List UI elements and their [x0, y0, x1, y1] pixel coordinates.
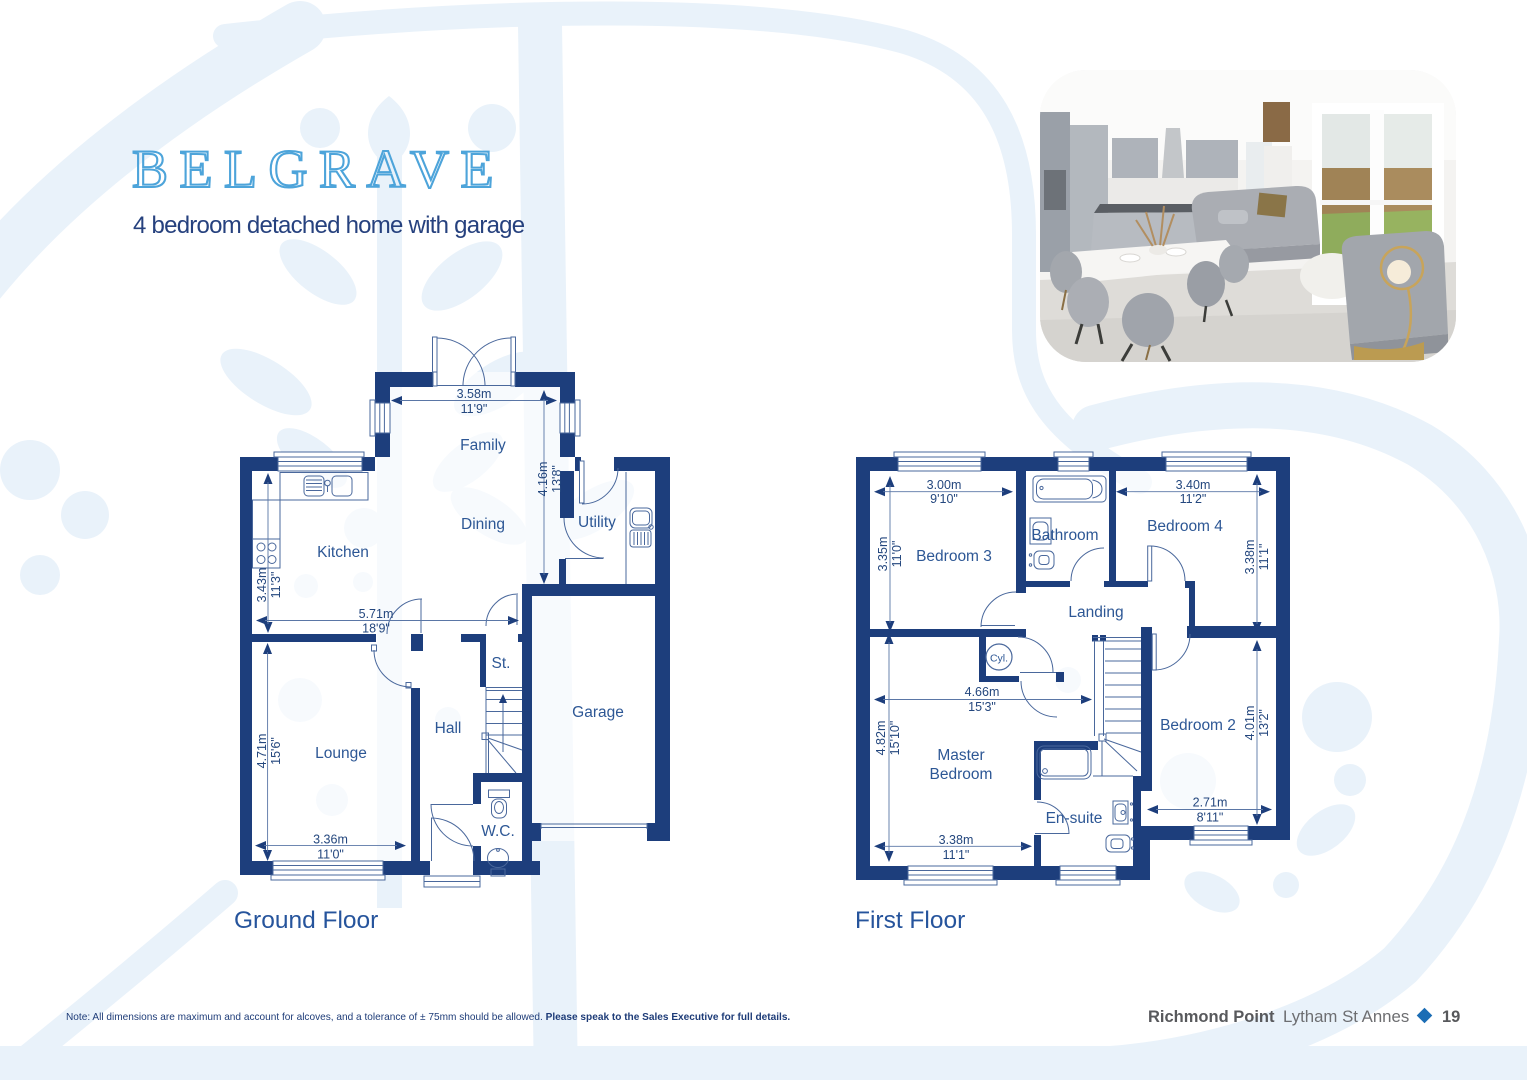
svg-text:St.: St.: [492, 655, 511, 672]
svg-text:11'9": 11'9": [461, 402, 488, 416]
svg-text:4.01m: 4.01m: [1243, 706, 1257, 741]
svg-text:5.71m: 5.71m: [359, 607, 394, 621]
svg-text:First Floor: First Floor: [855, 907, 965, 934]
svg-text:15'10": 15'10": [888, 721, 902, 756]
svg-text:3.40m: 3.40m: [1176, 478, 1211, 492]
svg-text:Hall: Hall: [435, 720, 462, 737]
svg-text:3.58m: 3.58m: [457, 387, 492, 401]
svg-text:2.71m: 2.71m: [1193, 796, 1228, 810]
svg-text:8'11": 8'11": [1197, 811, 1224, 825]
svg-text:Bathroom: Bathroom: [1031, 527, 1098, 544]
svg-text:En-suite: En-suite: [1046, 810, 1103, 827]
svg-text:Master: Master: [937, 747, 984, 764]
svg-text:Note: All dimensions are maxim: Note: All dimensions are maximum and acc…: [66, 1012, 790, 1023]
svg-text:3.00m: 3.00m: [927, 478, 962, 492]
svg-text:Kitchen: Kitchen: [317, 544, 369, 561]
svg-text:11'0": 11'0": [317, 848, 344, 862]
svg-text:15'6": 15'6": [269, 737, 283, 765]
svg-text:18'9": 18'9": [362, 622, 390, 636]
svg-text:BELGRAVE: BELGRAVE: [132, 139, 505, 199]
svg-text:11'3": 11'3": [269, 572, 283, 599]
svg-text:3.36m: 3.36m: [313, 833, 348, 847]
svg-text:13'8": 13'8": [550, 465, 564, 493]
svg-text:11'0": 11'0": [890, 541, 904, 568]
svg-text:Richmond Point: Richmond Point: [1148, 1008, 1275, 1026]
svg-text:3.38m: 3.38m: [939, 833, 974, 847]
svg-text:9'10": 9'10": [930, 492, 958, 506]
svg-text:19: 19: [1442, 1008, 1460, 1026]
svg-text:4.82m: 4.82m: [874, 721, 888, 756]
svg-text:Bedroom 3: Bedroom 3: [916, 548, 992, 565]
svg-text:Utility: Utility: [578, 514, 616, 531]
svg-text:11'1": 11'1": [943, 848, 970, 862]
svg-text:Bedroom 2: Bedroom 2: [1160, 717, 1236, 734]
svg-text:11'1": 11'1": [1257, 544, 1271, 571]
svg-text:3.43m: 3.43m: [255, 568, 269, 603]
svg-text:4.66m: 4.66m: [965, 685, 1000, 699]
svg-text:Lounge: Lounge: [315, 745, 367, 762]
svg-text:3.35m: 3.35m: [876, 537, 890, 572]
svg-text:4 bedroom detached home with g: 4 bedroom detached home with garage: [133, 212, 525, 239]
svg-text:3.38m: 3.38m: [1243, 540, 1257, 575]
svg-text:Bedroom 4: Bedroom 4: [1147, 518, 1223, 535]
svg-text:Ground Floor: Ground Floor: [234, 907, 378, 934]
svg-text:Lytham St Annes: Lytham St Annes: [1283, 1007, 1409, 1026]
svg-text:Family: Family: [460, 437, 506, 454]
svg-text:W.C.: W.C.: [481, 823, 515, 840]
svg-text:Bedroom: Bedroom: [930, 766, 993, 783]
svg-text:15'3": 15'3": [968, 700, 996, 714]
svg-text:Garage: Garage: [572, 704, 624, 721]
svg-text:Cyl.: Cyl.: [990, 653, 1008, 665]
svg-text:13'2": 13'2": [1257, 709, 1271, 737]
svg-text:11'2": 11'2": [1180, 492, 1207, 506]
svg-text:Dining: Dining: [461, 516, 505, 533]
svg-text:Landing: Landing: [1068, 604, 1123, 621]
svg-text:4.16m: 4.16m: [536, 462, 550, 497]
svg-text:4.71m: 4.71m: [255, 734, 269, 769]
